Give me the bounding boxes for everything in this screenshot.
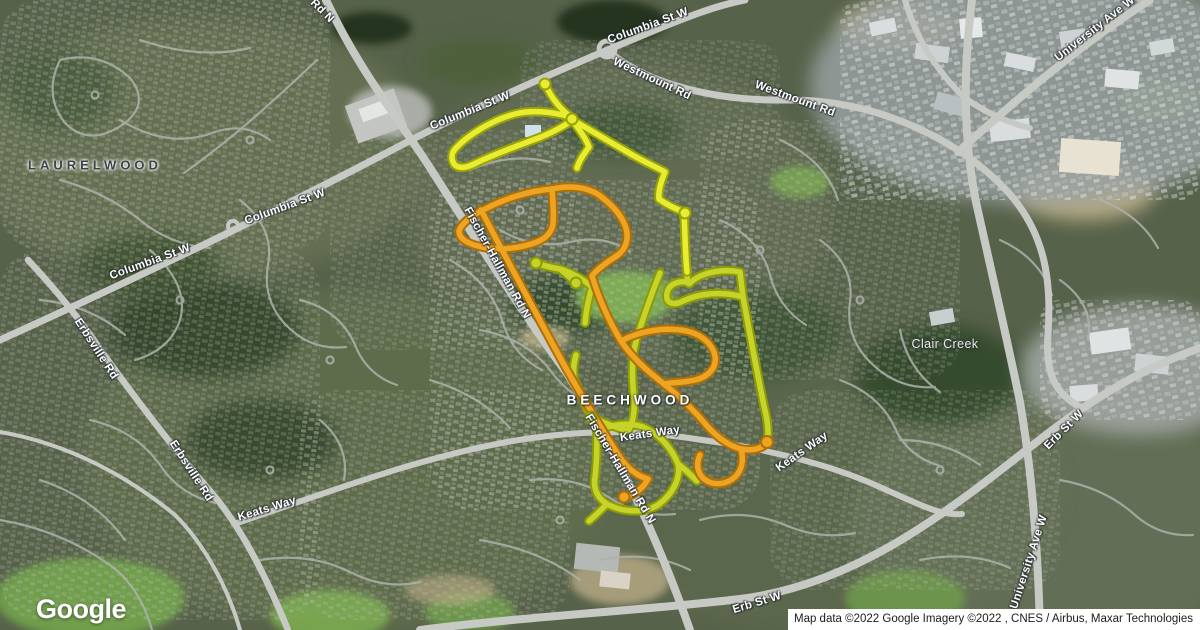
attribution-bar: Map data ©2022 Google Imagery ©2022 , CN… (788, 609, 1200, 630)
map-canvas[interactable]: Rd N Columbia St W Westmount Rd Westmoun… (0, 0, 1200, 630)
place-label-beechwood: BEECHWOOD (567, 393, 694, 408)
satellite-imagery (0, 0, 1200, 630)
google-logo[interactable]: Google (36, 594, 126, 625)
place-label-clair-creek: Clair Creek (912, 337, 979, 351)
place-label-laurelwood: LAURELWOOD (28, 158, 162, 173)
